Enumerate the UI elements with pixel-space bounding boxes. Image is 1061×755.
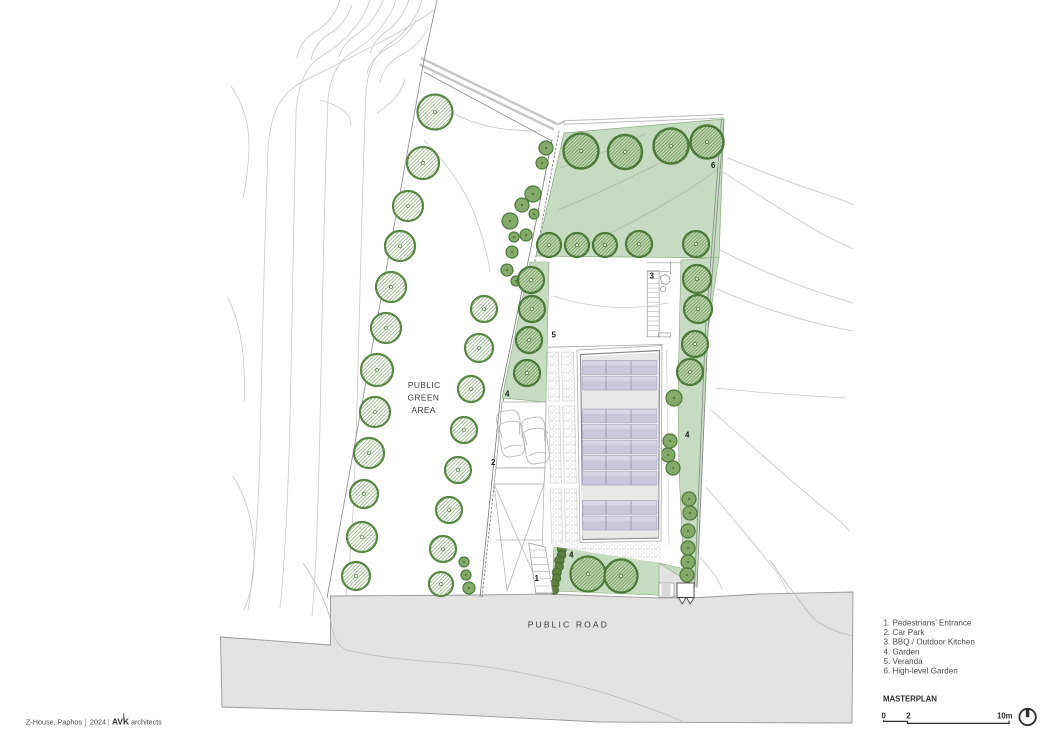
- svg-text:4: 4: [685, 431, 690, 440]
- svg-text:6. High-level Garden: 6. High-level Garden: [884, 667, 958, 676]
- svg-text:Z-House, Paphos|2024|AVKarchit: Z-House, Paphos|2024|AVKarchitects: [26, 717, 162, 727]
- svg-text:GREEN: GREEN: [408, 392, 440, 402]
- svg-text:3. BBQ / Outdoor Kitchen: 3. BBQ / Outdoor Kitchen: [884, 638, 975, 647]
- svg-text:AREA: AREA: [411, 405, 435, 415]
- svg-text:4. Garden: 4. Garden: [884, 647, 920, 656]
- svg-text:5. Veranda: 5. Veranda: [884, 657, 924, 666]
- svg-text:PUBLIC: PUBLIC: [408, 380, 441, 390]
- svg-text:MASTERPLAN: MASTERPLAN: [883, 694, 937, 703]
- svg-text:PUBLIC ROAD: PUBLIC ROAD: [528, 620, 609, 630]
- svg-text:1. Pedestrians’ Entrance: 1. Pedestrians’ Entrance: [884, 619, 972, 628]
- svg-text:2: 2: [906, 711, 911, 720]
- svg-text:3: 3: [650, 272, 655, 281]
- svg-text:6: 6: [711, 161, 716, 170]
- svg-text:1: 1: [535, 574, 540, 583]
- svg-text:2: 2: [491, 458, 496, 467]
- svg-text:4: 4: [569, 551, 574, 560]
- svg-text:5: 5: [552, 331, 557, 340]
- svg-text:10m: 10m: [997, 711, 1013, 720]
- svg-text:4: 4: [505, 390, 510, 399]
- svg-text:2. Car Park: 2. Car Park: [884, 628, 926, 637]
- svg-text:0: 0: [882, 711, 887, 720]
